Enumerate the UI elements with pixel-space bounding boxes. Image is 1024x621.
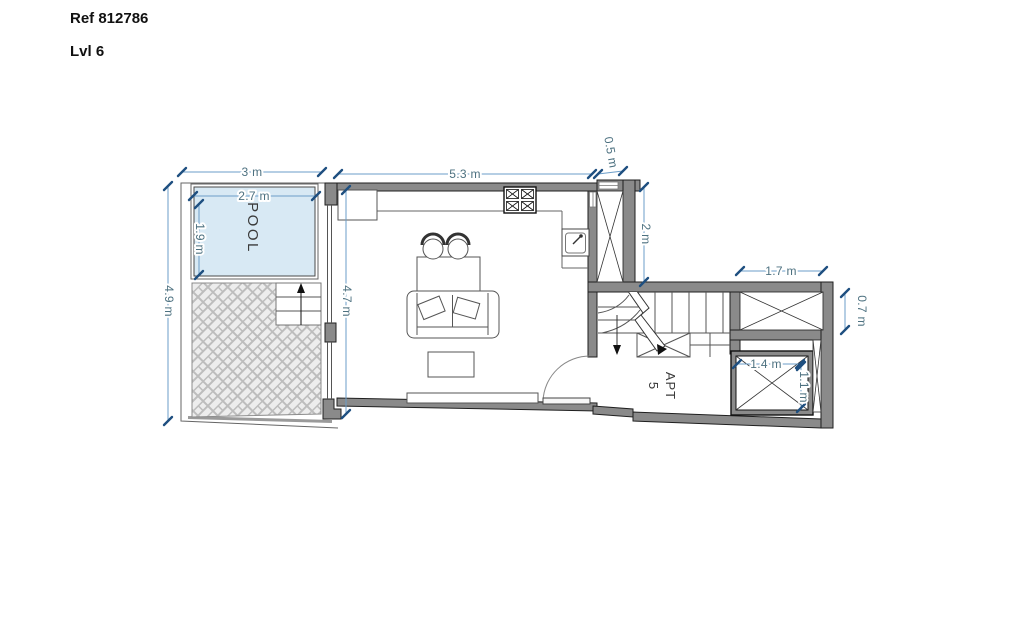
dining-chair: [422, 234, 444, 259]
entrance-door: [543, 356, 590, 404]
wall-post: [325, 183, 337, 205]
side-duct: [813, 340, 821, 412]
dim-living-width: 5.3 m: [449, 167, 481, 181]
duct-shaft: [597, 191, 623, 282]
apartment-label-line1: APT: [663, 372, 678, 400]
dim-pool-length: 1.9 m: [193, 223, 207, 255]
tv-bench: [407, 393, 538, 403]
dim-terrace-width: 3 m: [242, 165, 263, 179]
dining-chair: [447, 234, 469, 259]
coffee-table: [428, 352, 474, 377]
apartment-label: APT 5: [646, 372, 678, 400]
upper-shaft: [740, 292, 823, 330]
stove: [504, 187, 536, 213]
dim-lift-depth: 1.1 m: [797, 371, 811, 403]
apartment-label-line2: 5: [646, 382, 661, 390]
wall-post: [325, 323, 336, 342]
dim-terrace-length: 4.9 m: [162, 285, 176, 317]
dining-table: [417, 257, 480, 294]
dim-landing-depth: 0.7 m: [855, 295, 869, 327]
dim-duct-width: 0.5 m: [601, 136, 620, 169]
door-swing-arc: [543, 356, 590, 401]
pool-label: POOL: [244, 202, 261, 254]
stair-direction-arrow: [613, 315, 621, 355]
dim-duct-length: 2 m: [639, 224, 653, 245]
kitchen-cabinet: [338, 190, 377, 220]
staircase: [598, 283, 730, 357]
dim-pool-width: 2.7 m: [238, 189, 270, 203]
kitchen-sink: [562, 229, 589, 256]
dim-landing-width: 1.7 m: [765, 264, 797, 278]
terrace-steps: [276, 283, 321, 325]
floor-plan-drawing: POOL: [0, 0, 1024, 621]
dim-living-length: 4.7 m: [340, 285, 354, 317]
door-leaf: [543, 398, 590, 404]
floor-plan-page: Ref 812786 Lvl 6 PO: [0, 0, 1024, 621]
sofa: [407, 291, 499, 338]
dim-lift-width: 1.4 m: [750, 357, 782, 371]
